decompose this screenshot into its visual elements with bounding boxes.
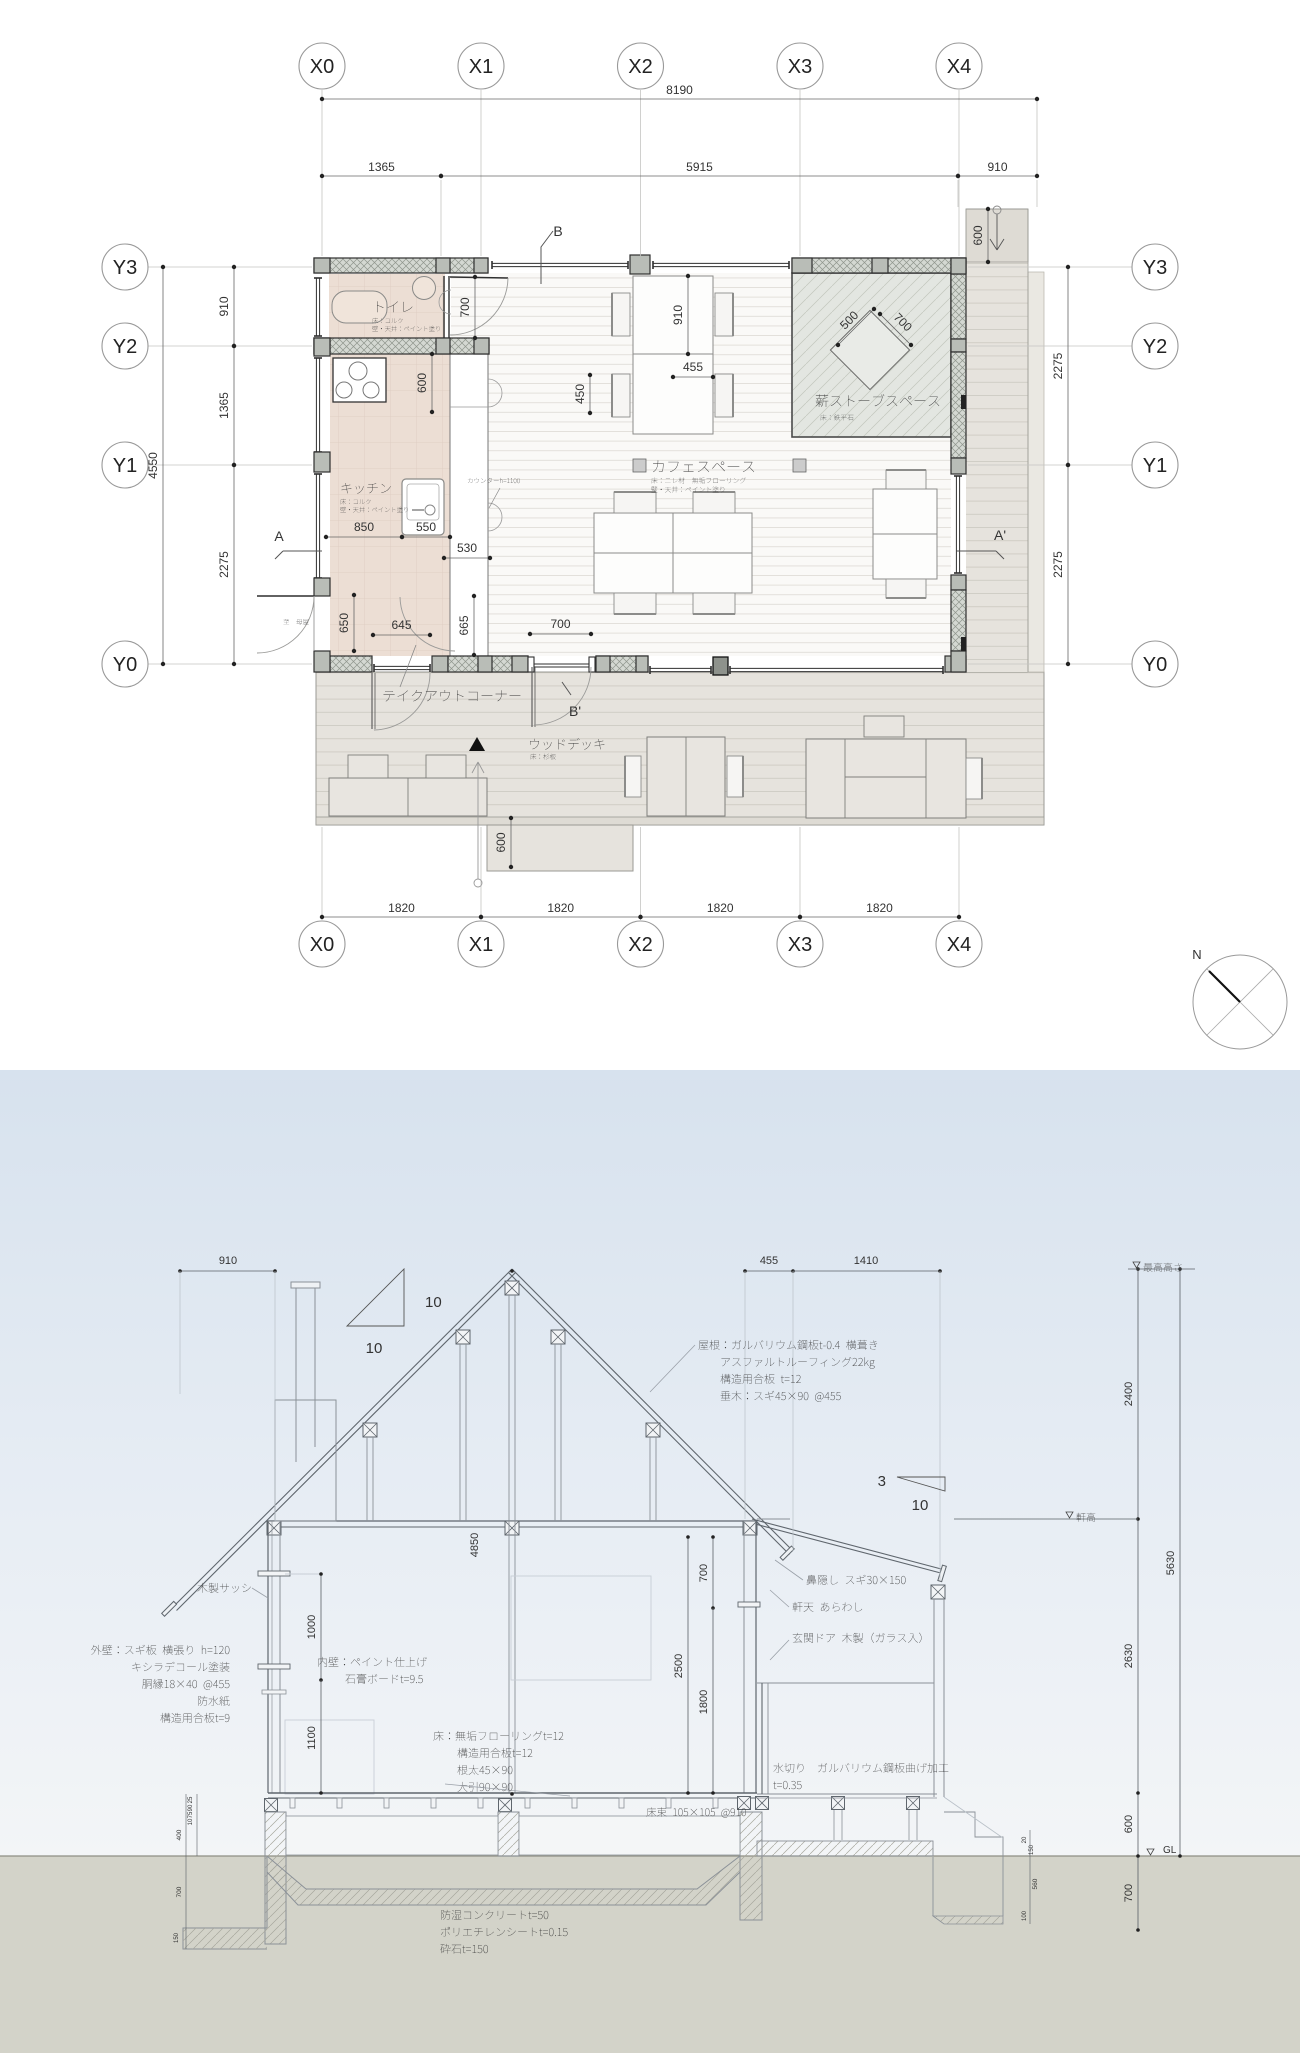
svg-text:X3: X3: [788, 56, 812, 78]
svg-text:700: 700: [550, 617, 570, 631]
svg-text:25: 25: [188, 1796, 194, 1803]
svg-text:Y2: Y2: [113, 336, 137, 358]
svg-text:X2: X2: [628, 56, 652, 78]
svg-text:1410: 1410: [854, 1255, 878, 1267]
svg-text:4850: 4850: [469, 1533, 481, 1557]
svg-text:150: 150: [174, 1932, 180, 1943]
svg-text:Y3: Y3: [1143, 257, 1167, 279]
svg-text:560: 560: [1032, 1878, 1039, 1889]
svg-text:1100: 1100: [306, 1726, 318, 1750]
svg-text:10: 10: [366, 1340, 383, 1357]
svg-text:X1: X1: [469, 56, 493, 78]
svg-text:2630: 2630: [1123, 1644, 1135, 1668]
svg-text:10: 10: [188, 1818, 194, 1825]
svg-text:455: 455: [683, 360, 703, 374]
svg-text:A: A: [274, 528, 284, 544]
svg-text:Y2: Y2: [1143, 336, 1167, 358]
svg-text:Y0: Y0: [113, 654, 137, 676]
svg-text:1820: 1820: [547, 901, 574, 915]
svg-text:1820: 1820: [866, 901, 893, 915]
svg-text:Y0: Y0: [1143, 654, 1167, 676]
svg-text:X3: X3: [788, 934, 812, 956]
svg-text:1000: 1000: [306, 1615, 318, 1639]
svg-text:910: 910: [219, 1255, 237, 1267]
svg-text:600: 600: [1123, 1815, 1135, 1833]
svg-text:X4: X4: [947, 934, 971, 956]
svg-text:A': A': [994, 527, 1006, 543]
svg-text:665: 665: [457, 615, 471, 635]
svg-text:650: 650: [337, 613, 351, 633]
svg-text:910: 910: [987, 160, 1007, 174]
svg-text:2275: 2275: [1051, 551, 1065, 578]
svg-text:X0: X0: [310, 56, 334, 78]
svg-text:Y1: Y1: [1143, 455, 1167, 477]
svg-text:100: 100: [1022, 1910, 1028, 1921]
svg-text:550: 550: [416, 520, 436, 534]
svg-text:600: 600: [415, 373, 429, 393]
svg-text:910: 910: [217, 296, 231, 316]
svg-text:90: 90: [188, 1804, 194, 1811]
svg-text:2275: 2275: [217, 551, 231, 578]
svg-text:600: 600: [971, 225, 985, 245]
svg-text:455: 455: [760, 1255, 778, 1267]
svg-text:600: 600: [494, 832, 508, 852]
svg-text:910: 910: [671, 305, 685, 325]
svg-text:450: 450: [573, 384, 587, 404]
svg-text:1820: 1820: [388, 901, 415, 915]
svg-text:75: 75: [188, 1811, 194, 1818]
svg-text:20: 20: [1022, 1836, 1028, 1843]
svg-text:10: 10: [425, 1294, 442, 1311]
svg-text:1365: 1365: [217, 392, 231, 419]
svg-text:400: 400: [176, 1829, 183, 1840]
svg-text:8190: 8190: [666, 83, 693, 97]
svg-text:5915: 5915: [686, 160, 713, 174]
svg-text:850: 850: [354, 520, 374, 534]
svg-text:1800: 1800: [698, 1690, 710, 1714]
svg-text:X2: X2: [628, 934, 652, 956]
svg-text:700: 700: [458, 297, 472, 317]
svg-text:700: 700: [1123, 1884, 1135, 1902]
svg-text:X0: X0: [310, 934, 334, 956]
svg-text:700: 700: [698, 1564, 710, 1582]
svg-text:2400: 2400: [1123, 1382, 1135, 1406]
svg-text:3: 3: [878, 1473, 886, 1490]
svg-text:X4: X4: [947, 56, 971, 78]
svg-text:N: N: [1192, 947, 1201, 962]
svg-text:645: 645: [391, 618, 411, 632]
svg-text:GL: GL: [1163, 1845, 1177, 1856]
svg-text:10: 10: [912, 1497, 929, 1514]
svg-text:530: 530: [457, 541, 477, 555]
svg-text:700: 700: [176, 1886, 183, 1897]
svg-text:X1: X1: [469, 934, 493, 956]
svg-text:Y1: Y1: [113, 455, 137, 477]
svg-text:Y3: Y3: [113, 257, 137, 279]
svg-text:1820: 1820: [707, 901, 734, 915]
svg-text:2275: 2275: [1051, 352, 1065, 379]
svg-text:B': B': [569, 703, 581, 719]
svg-text:1365: 1365: [368, 160, 395, 174]
svg-text:2500: 2500: [673, 1654, 685, 1678]
svg-text:B: B: [553, 223, 562, 239]
svg-text:5630: 5630: [1165, 1551, 1177, 1575]
